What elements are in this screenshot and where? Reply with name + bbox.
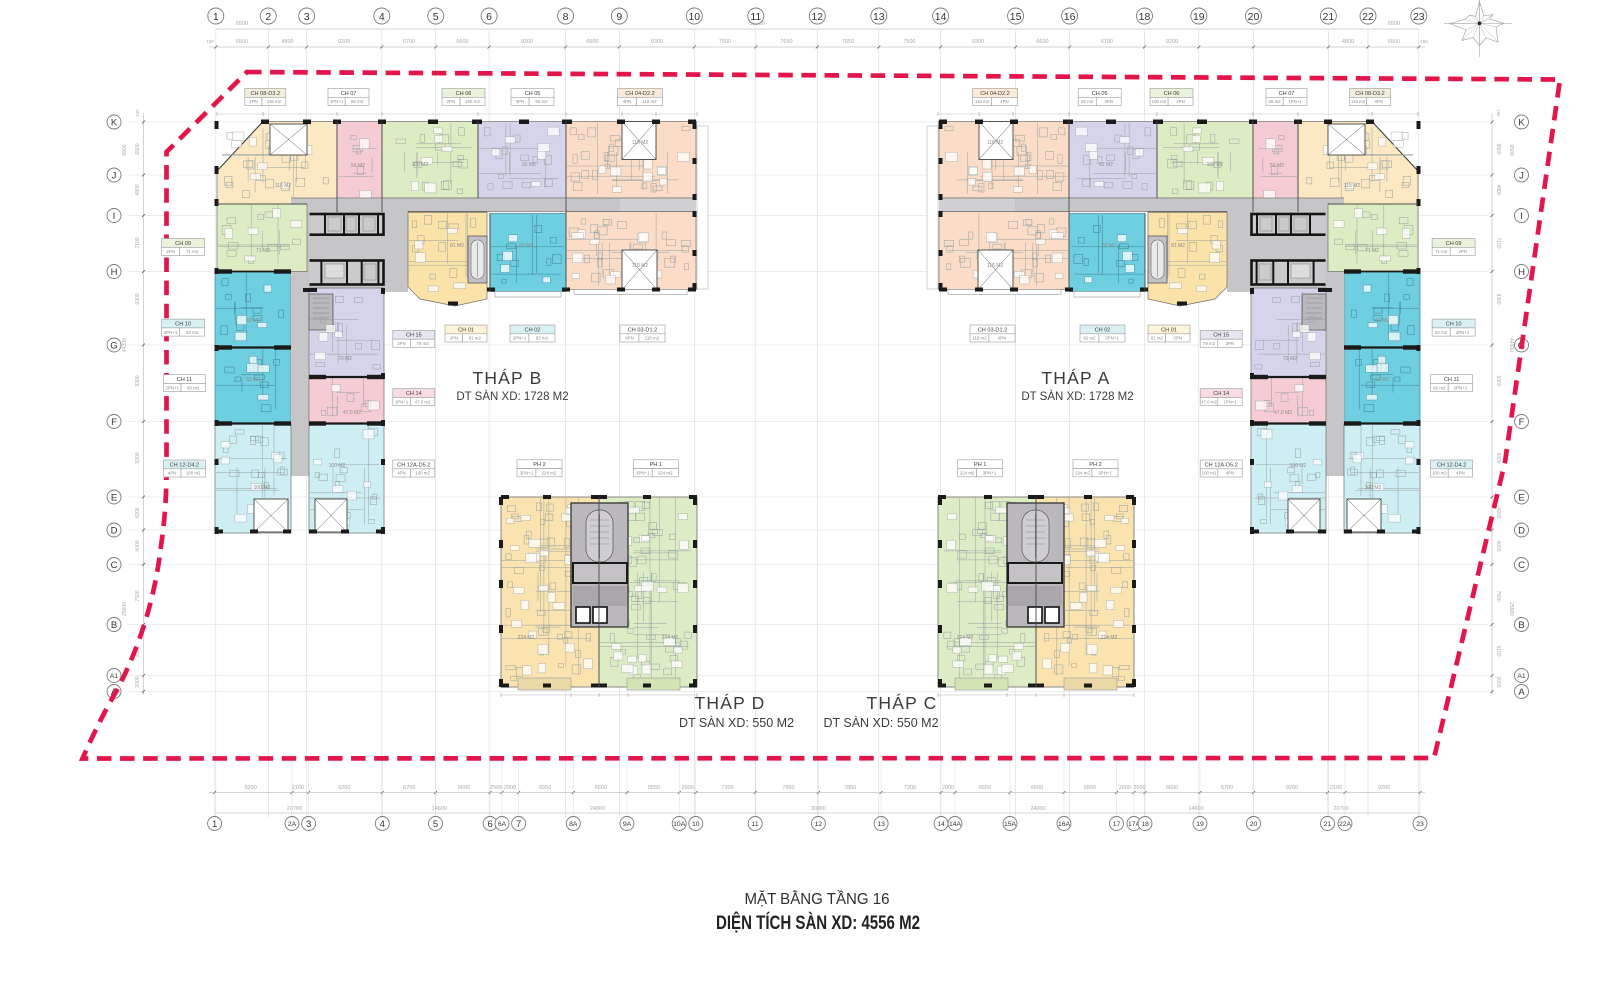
svg-text:16A: 16A — [1058, 821, 1071, 828]
svg-text:6500: 6500 — [236, 39, 248, 45]
svg-text:CH 03-D1.2: CH 03-D1.2 — [978, 327, 1008, 333]
svg-text:CH 05: CH 05 — [1092, 91, 1108, 97]
svg-text:DIỆN TÍCH SÀN XD: 4556 M2: DIỆN TÍCH SÀN XD: 4556 M2 — [716, 912, 920, 934]
svg-text:2000: 2000 — [682, 785, 694, 791]
svg-text:150: 150 — [135, 109, 140, 117]
svg-text:2500: 2500 — [1133, 785, 1145, 791]
svg-text:100 m2: 100 m2 — [1152, 99, 1167, 104]
svg-text:4PN: 4PN — [623, 99, 632, 104]
svg-text:100 M2: 100 M2 — [329, 463, 346, 469]
svg-text:9200: 9200 — [338, 39, 350, 45]
svg-text:1PN+1: 1PN+1 — [1288, 99, 1302, 104]
svg-text:CH 05: CH 05 — [525, 91, 541, 97]
svg-text:A1: A1 — [110, 673, 119, 680]
svg-text:224 M2: 224 M2 — [1101, 635, 1118, 641]
svg-text:CH 03-D1.2: CH 03-D1.2 — [628, 327, 658, 333]
svg-text:PH 2: PH 2 — [533, 462, 545, 468]
svg-text:7: 7 — [516, 819, 521, 830]
svg-text:82 m2: 82 m2 — [1435, 330, 1448, 335]
svg-text:5: 5 — [433, 11, 439, 23]
svg-text:11: 11 — [750, 11, 761, 23]
svg-text:44300: 44300 — [1508, 338, 1514, 352]
svg-text:3PN: 3PN — [1104, 99, 1113, 104]
svg-text:100 m2: 100 m2 — [465, 99, 480, 104]
svg-text:9300: 9300 — [1495, 452, 1501, 463]
svg-text:150: 150 — [1420, 39, 1428, 44]
svg-text:47.0 m2: 47.0 m2 — [1201, 399, 1217, 404]
svg-text:4PN: 4PN — [397, 471, 406, 476]
svg-text:C: C — [1518, 560, 1525, 571]
svg-text:8A: 8A — [569, 821, 578, 828]
svg-text:6500: 6500 — [122, 144, 128, 155]
svg-text:22A: 22A — [1339, 821, 1352, 828]
svg-text:7850: 7850 — [782, 785, 794, 791]
svg-text:100 M2: 100 M2 — [1365, 485, 1382, 491]
svg-text:2000: 2000 — [504, 785, 516, 791]
svg-text:82 m2: 82 m2 — [187, 385, 200, 390]
svg-text:CH 02: CH 02 — [525, 327, 541, 333]
svg-text:9300: 9300 — [135, 293, 141, 304]
svg-text:11: 11 — [752, 821, 759, 828]
svg-text:100 M2: 100 M2 — [412, 162, 429, 168]
svg-text:6500: 6500 — [236, 21, 248, 27]
svg-text:9300: 9300 — [1495, 293, 1501, 304]
svg-text:71 M2: 71 M2 — [256, 248, 270, 254]
svg-text:14600: 14600 — [1188, 806, 1203, 812]
svg-text:7500: 7500 — [719, 39, 731, 45]
svg-text:100 M2: 100 M2 — [1207, 162, 1224, 168]
svg-text:CH 07: CH 07 — [1279, 91, 1295, 97]
svg-text:CH 01: CH 01 — [458, 327, 474, 333]
svg-text:115 M2: 115 M2 — [275, 183, 292, 189]
svg-text:82 M2: 82 M2 — [246, 318, 260, 324]
svg-text:MẶT BẰNG TẦNG 16: MẶT BẰNG TẦNG 16 — [745, 890, 890, 908]
svg-text:14: 14 — [935, 11, 947, 23]
svg-text:4PN: 4PN — [1374, 99, 1383, 104]
svg-text:14A: 14A — [949, 821, 962, 828]
svg-text:24000: 24000 — [1030, 806, 1045, 812]
svg-text:2PN+1: 2PN+1 — [1454, 385, 1468, 390]
svg-text:9200: 9200 — [1286, 785, 1298, 791]
svg-text:56 m2: 56 m2 — [351, 99, 364, 104]
svg-text:3PN+1: 3PN+1 — [983, 471, 997, 476]
svg-text:118 M2: 118 M2 — [632, 263, 649, 269]
svg-text:A: A — [1518, 687, 1525, 698]
svg-text:2PN+1: 2PN+1 — [513, 336, 527, 341]
svg-text:82 M2: 82 M2 — [246, 377, 260, 383]
svg-text:56 m2: 56 m2 — [1268, 99, 1281, 104]
svg-text:CH 08-D3.2: CH 08-D3.2 — [251, 91, 281, 97]
svg-text:9300: 9300 — [972, 39, 984, 45]
svg-text:CH 11: CH 11 — [1444, 377, 1459, 383]
svg-text:82 m2: 82 m2 — [536, 336, 549, 341]
svg-text:6500: 6500 — [1388, 21, 1400, 27]
svg-text:H: H — [111, 267, 118, 278]
svg-text:10: 10 — [692, 821, 700, 828]
svg-text:23: 23 — [1416, 821, 1424, 828]
svg-text:92 M2: 92 M2 — [522, 162, 536, 168]
svg-text:2PN: 2PN — [447, 99, 456, 104]
svg-text:9200: 9200 — [338, 785, 350, 791]
svg-text:20: 20 — [1248, 11, 1260, 23]
svg-text:THÁP C: THÁP C — [866, 693, 937, 713]
svg-text:82 M2: 82 M2 — [519, 243, 533, 249]
svg-text:100 M2: 100 M2 — [1290, 463, 1307, 469]
svg-text:THÁP B: THÁP B — [472, 368, 542, 388]
svg-text:100 m2: 100 m2 — [186, 471, 201, 476]
svg-text:6600: 6600 — [1036, 39, 1048, 45]
svg-text:16: 16 — [1064, 11, 1076, 23]
svg-text:81 m2: 81 m2 — [1151, 336, 1164, 341]
svg-text:30000: 30000 — [811, 806, 826, 812]
svg-text:CH 11: CH 11 — [177, 377, 192, 383]
svg-text:224 M2: 224 M2 — [518, 635, 535, 641]
svg-text:CH 12-D4.2: CH 12-D4.2 — [170, 462, 200, 468]
svg-text:15: 15 — [1010, 11, 1022, 23]
svg-text:21: 21 — [1324, 821, 1332, 828]
svg-text:K: K — [1518, 117, 1525, 128]
svg-text:13: 13 — [873, 11, 885, 23]
svg-text:6700: 6700 — [1221, 785, 1233, 791]
svg-text:6550: 6550 — [1084, 785, 1096, 791]
svg-text:6550: 6550 — [539, 785, 551, 791]
svg-text:71 M2: 71 M2 — [1365, 248, 1379, 254]
svg-text:9300: 9300 — [135, 452, 141, 463]
svg-text:2PN+1: 2PN+1 — [164, 330, 178, 335]
svg-text:CH 10: CH 10 — [175, 321, 191, 327]
svg-text:224 m2: 224 m2 — [542, 471, 557, 476]
svg-text:4PN: 4PN — [1456, 471, 1465, 476]
svg-text:6600: 6600 — [456, 39, 468, 45]
svg-text:C: C — [111, 560, 118, 571]
svg-text:H: H — [1518, 267, 1525, 278]
svg-text:CH 14: CH 14 — [406, 391, 422, 397]
svg-text:10: 10 — [688, 11, 700, 23]
svg-text:44300: 44300 — [122, 338, 128, 352]
svg-text:7500: 7500 — [135, 590, 141, 601]
svg-text:E: E — [1518, 492, 1524, 503]
svg-text:1PN+1: 1PN+1 — [395, 399, 409, 404]
svg-text:79 M2: 79 M2 — [338, 356, 352, 362]
svg-text:150: 150 — [1496, 110, 1501, 118]
svg-text:6500: 6500 — [135, 143, 141, 154]
svg-text:7300: 7300 — [721, 785, 733, 791]
svg-text:23: 23 — [1413, 11, 1425, 23]
svg-text:CH 10: CH 10 — [1446, 321, 1462, 327]
svg-text:CH 06: CH 06 — [456, 91, 472, 97]
svg-text:4PN: 4PN — [998, 336, 1007, 341]
svg-text:4PN: 4PN — [249, 99, 258, 104]
svg-text:2PN: 2PN — [166, 249, 175, 254]
svg-text:82 M2: 82 M2 — [1375, 377, 1389, 383]
svg-text:6600: 6600 — [1031, 785, 1043, 791]
svg-text:20700: 20700 — [1333, 806, 1348, 812]
svg-text:115 M2: 115 M2 — [1344, 183, 1361, 189]
svg-text:6600: 6600 — [586, 39, 598, 45]
svg-text:4: 4 — [379, 11, 385, 23]
svg-text:118 M2: 118 M2 — [987, 140, 1004, 146]
svg-text:92 m2: 92 m2 — [535, 99, 548, 104]
svg-text:6600: 6600 — [1166, 785, 1178, 791]
svg-text:CH 02: CH 02 — [1095, 327, 1111, 333]
svg-text:3: 3 — [304, 11, 310, 23]
svg-text:1PN+1: 1PN+1 — [1223, 399, 1237, 404]
svg-text:9300: 9300 — [651, 39, 663, 45]
svg-text:2000: 2000 — [135, 676, 141, 687]
svg-text:6600: 6600 — [595, 785, 607, 791]
svg-text:2: 2 — [265, 11, 271, 23]
svg-text:6700: 6700 — [403, 785, 415, 791]
svg-text:56 M2: 56 M2 — [351, 163, 365, 169]
svg-text:4800: 4800 — [1495, 184, 1501, 195]
svg-text:F: F — [111, 417, 117, 428]
svg-text:PH 1: PH 1 — [650, 462, 662, 468]
svg-text:10A: 10A — [673, 821, 686, 828]
svg-text:4000: 4000 — [135, 540, 141, 551]
svg-text:E: E — [111, 492, 117, 503]
svg-text:118 m2: 118 m2 — [645, 336, 660, 341]
svg-text:2PN+1: 2PN+1 — [165, 385, 179, 390]
svg-text:82 m2: 82 m2 — [1083, 336, 1096, 341]
svg-text:3PN: 3PN — [516, 99, 525, 104]
svg-text:DT SÀN XD: 550 M2: DT SÀN XD: 550 M2 — [679, 715, 794, 730]
svg-text:47.0 M2: 47.0 M2 — [1274, 410, 1292, 416]
svg-text:2PN: 2PN — [397, 341, 406, 346]
svg-text:4PN: 4PN — [1000, 99, 1009, 104]
svg-text:CH 15: CH 15 — [406, 333, 422, 339]
svg-text:CH 04-D2.2: CH 04-D2.2 — [625, 91, 655, 97]
svg-text:81 m2: 81 m2 — [469, 336, 482, 341]
svg-text:K: K — [111, 117, 118, 128]
svg-text:2000: 2000 — [942, 785, 954, 791]
svg-text:3PN+1: 3PN+1 — [1098, 471, 1112, 476]
svg-text:J: J — [112, 170, 117, 181]
svg-text:4PN: 4PN — [168, 471, 177, 476]
svg-text:15A: 15A — [1004, 821, 1017, 828]
svg-text:118 M2: 118 M2 — [632, 140, 649, 146]
svg-text:20: 20 — [1250, 821, 1258, 828]
svg-text:6550: 6550 — [648, 785, 660, 791]
svg-text:2000: 2000 — [1495, 676, 1501, 687]
svg-text:6500: 6500 — [1508, 144, 1514, 155]
svg-text:CH 09: CH 09 — [175, 241, 191, 247]
svg-text:19: 19 — [1193, 11, 1205, 23]
svg-text:79 m2: 79 m2 — [1203, 341, 1216, 346]
svg-text:100 M2: 100 M2 — [254, 485, 271, 491]
svg-text:6A: 6A — [498, 821, 507, 828]
svg-text:2100: 2100 — [1330, 785, 1342, 791]
svg-text:81 M2: 81 M2 — [1171, 243, 1185, 249]
svg-text:21: 21 — [1323, 11, 1335, 23]
svg-text:3: 3 — [306, 819, 311, 830]
svg-text:56 M2: 56 M2 — [1270, 163, 1284, 169]
svg-text:7100: 7100 — [135, 237, 141, 248]
svg-text:8: 8 — [563, 11, 569, 23]
svg-text:118 m2: 118 m2 — [642, 99, 657, 104]
svg-text:6500: 6500 — [1495, 143, 1501, 154]
svg-text:224 m2: 224 m2 — [1075, 471, 1090, 476]
svg-text:9: 9 — [616, 11, 622, 23]
svg-text:9300: 9300 — [521, 39, 533, 45]
svg-text:7300: 7300 — [904, 785, 916, 791]
svg-text:CH 04-D2.2: CH 04-D2.2 — [980, 91, 1010, 97]
svg-text:DT SÀN XD: 1728 M2: DT SÀN XD: 1728 M2 — [456, 390, 568, 403]
svg-text:CH 12-D4.2: CH 12-D4.2 — [1437, 462, 1467, 468]
svg-text:79 m2: 79 m2 — [416, 341, 429, 346]
svg-text:92 M2: 92 M2 — [1099, 162, 1113, 168]
svg-text:7650: 7650 — [842, 39, 854, 45]
svg-text:17: 17 — [1113, 821, 1121, 828]
svg-text:4800: 4800 — [1342, 39, 1354, 45]
svg-text:6600: 6600 — [458, 785, 470, 791]
svg-text:PH 1: PH 1 — [974, 462, 986, 468]
svg-text:118 m2: 118 m2 — [972, 336, 987, 341]
svg-text:6500: 6500 — [1388, 39, 1400, 45]
svg-text:I: I — [1520, 211, 1523, 222]
svg-text:2PN: 2PN — [1226, 341, 1235, 346]
svg-text:2PN: 2PN — [1176, 99, 1185, 104]
svg-text:82 M2: 82 M2 — [1102, 243, 1116, 249]
svg-text:4200: 4200 — [1495, 507, 1501, 518]
svg-text:82 m2: 82 m2 — [1433, 385, 1446, 390]
svg-text:9200: 9200 — [1166, 39, 1178, 45]
svg-text:82 m2: 82 m2 — [186, 330, 199, 335]
svg-text:79 M2: 79 M2 — [1283, 356, 1297, 362]
svg-text:4PN: 4PN — [625, 336, 634, 341]
svg-text:6700: 6700 — [403, 39, 415, 45]
svg-text:18: 18 — [1139, 11, 1151, 23]
svg-text:150: 150 — [206, 39, 214, 44]
svg-text:9300: 9300 — [135, 375, 141, 386]
svg-text:14: 14 — [937, 821, 945, 828]
svg-text:24000: 24000 — [590, 806, 605, 812]
svg-text:THÁP A: THÁP A — [1041, 368, 1110, 388]
svg-text:47.0 m2: 47.0 m2 — [415, 399, 431, 404]
svg-text:4200: 4200 — [135, 507, 141, 518]
svg-text:14600: 14600 — [432, 806, 447, 812]
svg-text:92 m2: 92 m2 — [1081, 99, 1094, 104]
svg-text:2PN+1: 2PN+1 — [1105, 336, 1119, 341]
svg-text:3PN+1: 3PN+1 — [520, 471, 534, 476]
svg-text:7100: 7100 — [1495, 237, 1501, 248]
svg-text:4: 4 — [380, 819, 385, 830]
svg-text:81 M2: 81 M2 — [450, 243, 464, 249]
svg-text:3PN+1: 3PN+1 — [636, 471, 650, 476]
svg-text:7500: 7500 — [903, 39, 915, 45]
svg-text:CH 14: CH 14 — [1213, 391, 1229, 397]
svg-text:CH 15: CH 15 — [1213, 333, 1229, 339]
svg-text:2PN: 2PN — [450, 336, 459, 341]
svg-text:1: 1 — [212, 819, 217, 830]
svg-text:115 m2: 115 m2 — [1351, 99, 1366, 104]
svg-text:6100: 6100 — [1495, 645, 1501, 656]
svg-text:6700: 6700 — [1101, 39, 1113, 45]
svg-text:47.0 M2: 47.0 M2 — [343, 410, 361, 416]
svg-text:19: 19 — [1196, 821, 1204, 828]
svg-text:2A: 2A — [288, 821, 297, 828]
svg-text:224 M2: 224 M2 — [957, 635, 974, 641]
svg-text:B: B — [1518, 620, 1524, 631]
svg-text:THÁP D: THÁP D — [694, 693, 765, 713]
svg-text:12: 12 — [811, 11, 823, 23]
svg-text:2100: 2100 — [292, 785, 304, 791]
svg-text:82 M2: 82 M2 — [1375, 318, 1389, 324]
svg-text:4800: 4800 — [281, 39, 293, 45]
svg-text:118 M2: 118 M2 — [987, 263, 1004, 269]
svg-text:115 m2: 115 m2 — [267, 99, 282, 104]
svg-text:G: G — [110, 340, 117, 351]
svg-text:B: B — [111, 620, 117, 631]
svg-text:25600: 25600 — [122, 602, 128, 616]
svg-text:CH 08-D3.2: CH 08-D3.2 — [1355, 91, 1385, 97]
svg-text:PH 2: PH 2 — [1089, 462, 1101, 468]
svg-text:6: 6 — [486, 11, 492, 23]
svg-text:CH 01: CH 01 — [1161, 327, 1177, 333]
svg-text:DT SÀN XD: 1728 M2: DT SÀN XD: 1728 M2 — [1021, 390, 1133, 403]
svg-text:J: J — [1519, 170, 1524, 181]
svg-text:224 m2: 224 m2 — [658, 471, 673, 476]
svg-text:CH 06: CH 06 — [1164, 91, 1180, 97]
svg-text:25600: 25600 — [1508, 602, 1514, 616]
svg-text:224 m2: 224 m2 — [960, 471, 975, 476]
svg-text:12: 12 — [815, 821, 823, 828]
svg-text:2500: 2500 — [490, 785, 502, 791]
svg-text:2PN: 2PN — [1174, 336, 1183, 341]
svg-text:D: D — [1518, 525, 1525, 536]
svg-text:6: 6 — [487, 819, 492, 830]
svg-text:4PN: 4PN — [1226, 471, 1235, 476]
svg-text:20700: 20700 — [287, 806, 302, 812]
svg-text:1PN+1: 1PN+1 — [330, 99, 344, 104]
svg-text:DT SÀN XD: 550 M2: DT SÀN XD: 550 M2 — [823, 715, 938, 730]
svg-text:9200: 9200 — [1378, 785, 1390, 791]
svg-text:CH 12A-D5.2: CH 12A-D5.2 — [397, 462, 430, 468]
svg-text:100 m2: 100 m2 — [1432, 471, 1447, 476]
svg-text:2PN+1: 2PN+1 — [1456, 330, 1470, 335]
svg-text:100 m2: 100 m2 — [1202, 471, 1217, 476]
svg-text:9200: 9200 — [245, 785, 257, 791]
svg-text:4800: 4800 — [135, 184, 141, 195]
svg-text:A1: A1 — [1517, 673, 1526, 680]
svg-text:CH 07: CH 07 — [341, 91, 357, 97]
svg-text:D: D — [111, 525, 118, 536]
svg-text:224 M2: 224 M2 — [662, 635, 679, 641]
svg-text:F: F — [1519, 417, 1525, 428]
svg-text:1: 1 — [213, 11, 219, 23]
svg-text:22: 22 — [1362, 11, 1374, 23]
svg-text:7850: 7850 — [844, 785, 856, 791]
svg-text:9300: 9300 — [1495, 375, 1501, 386]
svg-text:18: 18 — [1141, 821, 1149, 828]
svg-text:9A: 9A — [623, 821, 632, 828]
svg-text:2PN: 2PN — [1458, 249, 1467, 254]
svg-text:71 m2: 71 m2 — [1435, 249, 1448, 254]
svg-text:2000: 2000 — [1119, 785, 1131, 791]
svg-text:118 m2: 118 m2 — [975, 99, 990, 104]
svg-text:CH 12A-D5.2: CH 12A-D5.2 — [1205, 462, 1238, 468]
svg-text:4000: 4000 — [1495, 540, 1501, 551]
svg-text:7650: 7650 — [780, 39, 792, 45]
svg-text:I: I — [113, 211, 116, 222]
svg-text:71 m2: 71 m2 — [186, 249, 199, 254]
svg-text:CH 09: CH 09 — [1446, 241, 1462, 247]
svg-text:100 m2: 100 m2 — [415, 471, 430, 476]
svg-text:6550: 6550 — [979, 785, 991, 791]
svg-text:7500: 7500 — [1495, 590, 1501, 601]
svg-text:13: 13 — [877, 821, 885, 828]
svg-text:5: 5 — [433, 819, 438, 830]
